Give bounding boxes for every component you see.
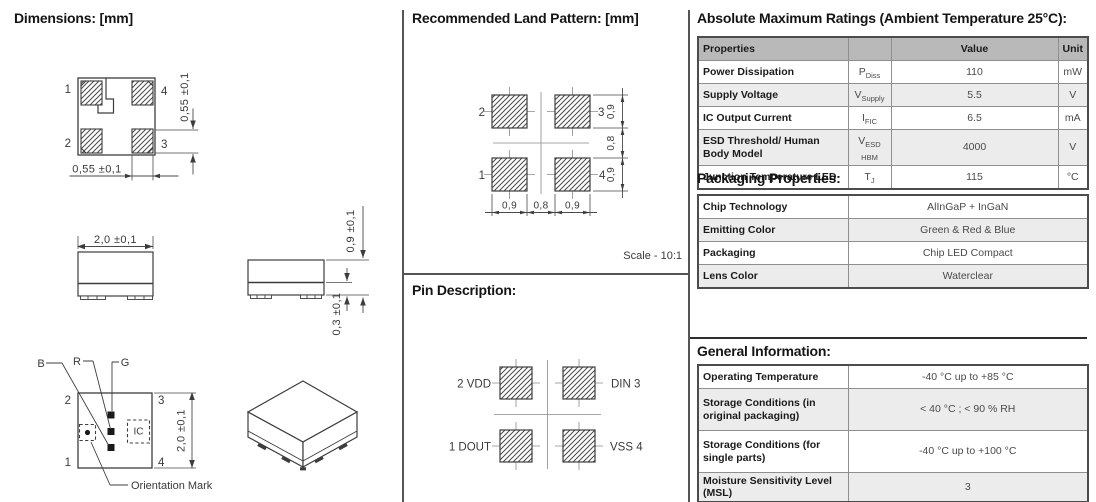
dim-label: 0,3 ±0,1 — [331, 293, 343, 336]
table-row: Moisture Sensitivity Level (MSL) 3 — [698, 473, 1088, 502]
symbol-cell: TJ — [848, 166, 891, 190]
red-led-chip — [108, 428, 115, 435]
pad-number: 1 — [65, 457, 71, 469]
value-cell: Chip LED Compact — [848, 242, 1088, 265]
pad-number: 4 — [599, 170, 606, 182]
dims-bottom: 0,9 0,8 0,9 — [485, 194, 597, 216]
value-cell: 4000 — [891, 130, 1058, 166]
property-cell: Emitting Color — [698, 219, 848, 242]
dim-standoff: 0,3 ±0,1 — [326, 268, 352, 335]
blue-chip-label: B — [37, 358, 44, 370]
general-info-table: Operating Temperature -40 °C up to +85 °… — [697, 364, 1089, 502]
property-cell: Moisture Sensitivity Level (MSL) — [698, 473, 848, 502]
package-side-view: 0,9 ±0,1 0,3 ±0,1 — [248, 206, 369, 335]
dim-label: 0,8 — [533, 201, 548, 212]
packaging-title: Packaging Properties: — [697, 170, 841, 186]
package-3d-view — [248, 381, 357, 469]
pin-pad-vdd — [500, 367, 532, 399]
property-cell: Packaging — [698, 242, 848, 265]
value-cell: Waterclear — [848, 265, 1088, 289]
dim-label: 0,9 — [606, 167, 617, 182]
pad-2 — [81, 129, 102, 153]
value-cell: 3 — [848, 473, 1088, 502]
unit-cell: V — [1058, 84, 1088, 107]
property-cell: Lens Color — [698, 265, 848, 289]
table-row: Operating Temperature -40 °C up to +85 °… — [698, 365, 1088, 389]
package-bottom-view: 1 4 2 3 0,55 ±0,1 0,55 ±0,1 — [65, 72, 198, 180]
dim-label: 0,9 — [606, 104, 617, 119]
value-cell: 6.5 — [891, 107, 1058, 130]
dim-label: 0,8 — [606, 135, 617, 150]
green-chip-label: G — [121, 357, 130, 369]
symbol-cell: VESD HBM — [848, 130, 891, 166]
land-pattern-diagram: 2 3 1 4 0,9 0,8 0,9 — [479, 87, 628, 216]
unit-cell: °C — [1058, 166, 1088, 190]
pin-pad-vss — [563, 430, 595, 462]
value-cell: -40 °C up to +85 °C — [848, 365, 1088, 389]
pin-label-vss: VSS 4 — [610, 442, 643, 454]
value-cell: AlInGaP + InGaN — [848, 195, 1088, 219]
header-cell: Value — [891, 37, 1058, 61]
abs-max-title: Absolute Maximum Ratings (Ambient Temper… — [697, 10, 1067, 26]
header-cell — [848, 37, 891, 61]
pin-description-diagram: 2 VDD DIN 3 1 DOUT VSS 4 — [449, 359, 643, 470]
dim-label: 2,0 ±0,1 — [176, 409, 188, 452]
pad-3 — [132, 129, 153, 153]
table-header-row: Properties Value Unit — [698, 37, 1088, 61]
pad-number: 1 — [479, 170, 485, 182]
pin-pad-dout — [500, 430, 532, 462]
value-cell: 5.5 — [891, 84, 1058, 107]
general-info-divider — [690, 337, 1087, 339]
orientation-mark-dot — [85, 430, 90, 435]
property-cell: Chip Technology — [698, 195, 848, 219]
red-chip-label: R — [73, 356, 81, 368]
value-cell: < 40 °C ; < 90 % RH — [848, 389, 1088, 431]
table-row: ESD Threshold/ Human Body Model VESD HBM… — [698, 130, 1088, 166]
packaging-table: Chip Technology AlInGaP + InGaN Emitting… — [697, 194, 1089, 289]
land-pad-1 — [492, 158, 527, 191]
value-cell: 115 — [891, 166, 1058, 190]
pad-number: 2 — [65, 395, 71, 407]
table-row: Emitting Color Green & Red & Blue — [698, 219, 1088, 242]
package-front-view: 2,0 ±0,1 — [78, 234, 153, 300]
property-cell: Power Dissipation — [698, 61, 848, 84]
blue-led-chip — [108, 444, 115, 451]
unit-cell: mW — [1058, 61, 1088, 84]
dim-label: 0,55 ±0,1 — [72, 164, 121, 176]
pad-number: 3 — [598, 107, 604, 119]
unit-cell: V — [1058, 130, 1088, 166]
value-cell: 110 — [891, 61, 1058, 84]
property-cell: IC Output Current — [698, 107, 848, 130]
pin-pad-din — [563, 367, 595, 399]
table-row: Storage Conditions (for single parts) -4… — [698, 431, 1088, 473]
pin-label-vdd: 2 VDD — [457, 379, 491, 391]
unit-cell: mA — [1058, 107, 1088, 130]
dim-pad-width: 0,55 ±0,1 — [70, 156, 178, 180]
property-cell: Storage Conditions (for single parts) — [698, 431, 848, 473]
table-row: Supply Voltage VSupply 5.5 V — [698, 84, 1088, 107]
property-cell: Supply Voltage — [698, 84, 848, 107]
dim-label: 0,9 — [565, 201, 580, 212]
property-cell: ESD Threshold/ Human Body Model — [698, 130, 848, 166]
pin-label-din: DIN 3 — [611, 379, 640, 391]
pad-number: 2 — [479, 107, 485, 119]
dim-width: 2,0 ±0,1 — [78, 234, 153, 249]
value-cell: -40 °C up to +100 °C — [848, 431, 1088, 473]
table-row: Packaging Chip LED Compact — [698, 242, 1088, 265]
header-cell: Unit — [1058, 37, 1088, 61]
pad-number: 1 — [65, 84, 71, 96]
abs-max-table: Properties Value Unit Power Dissipation … — [697, 36, 1089, 190]
pad-number: 2 — [65, 138, 71, 150]
datasheet-page: Dimensions: [mm] 1 4 — [0, 0, 1096, 502]
table-row: Chip Technology AlInGaP + InGaN — [698, 195, 1088, 219]
dim-label: 0,9 ±0,1 — [345, 210, 357, 253]
dim-label: 0,55 ±0,1 — [179, 72, 191, 121]
pad-number: 4 — [161, 86, 168, 98]
pad-number: 4 — [158, 457, 165, 469]
property-cell: Storage Conditions (in original packagin… — [698, 389, 848, 431]
land-pad-2 — [492, 95, 527, 128]
dim-label: 2,0 ±0,1 — [94, 234, 137, 246]
package-top-internal-view: 2 3 1 4 IC B R G 2,0 ±0,1 — [37, 356, 212, 492]
table-row: IC Output Current IFIC 6.5 mA — [698, 107, 1088, 130]
orientation-mark-label: Orientation Mark — [131, 480, 213, 492]
table-row: Lens Color Waterclear — [698, 265, 1088, 289]
pad-1 — [81, 81, 102, 105]
header-cell: Properties — [698, 37, 848, 61]
symbol-cell: PDiss — [848, 61, 891, 84]
dim-label: 0,9 — [502, 201, 517, 212]
pad-number: 3 — [158, 395, 164, 407]
middle-diagrams: 2 3 1 4 0,9 0,8 0,9 — [400, 0, 690, 502]
symbol-cell: IFIC — [848, 107, 891, 130]
land-pad-3 — [555, 95, 590, 128]
pad-number: 3 — [161, 139, 167, 151]
green-led-chip — [108, 412, 115, 419]
pin-label-dout: 1 DOUT — [449, 442, 491, 454]
table-row: Storage Conditions (in original packagin… — [698, 389, 1088, 431]
pad-4 — [132, 81, 153, 105]
table-row: Power Dissipation PDiss 110 mW — [698, 61, 1088, 84]
land-pad-4 — [555, 158, 590, 191]
value-cell: Green & Red & Blue — [848, 219, 1088, 242]
ic-label: IC — [134, 427, 144, 438]
symbol-cell: VSupply — [848, 84, 891, 107]
property-cell: Operating Temperature — [698, 365, 848, 389]
dimensions-drawings: 1 4 2 3 0,55 ±0,1 0,55 ±0,1 — [0, 0, 400, 502]
general-info-title: General Information: — [697, 343, 831, 359]
